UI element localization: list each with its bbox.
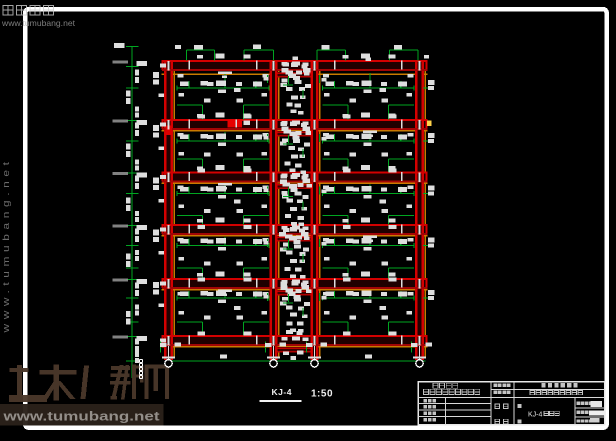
svg-text:www.tumubang.net: www.tumubang.net — [1, 158, 11, 334]
svg-text:KJ-4: KJ-4 — [272, 387, 292, 397]
svg-text:www.tumubang.net: www.tumubang.net — [1, 18, 76, 28]
svg-text:1:50: 1:50 — [311, 389, 333, 400]
svg-text:www.tumubang.net: www.tumubang.net — [2, 409, 160, 424]
svg-text:KJ-4: KJ-4 — [528, 412, 543, 419]
